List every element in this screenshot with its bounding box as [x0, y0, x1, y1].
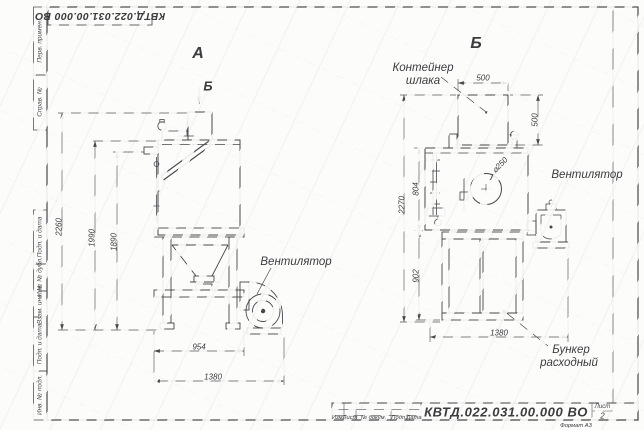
front-dim-total-width: 1380	[204, 373, 222, 382]
side-dim-total-depth: 1380	[490, 329, 508, 338]
front-dim-total-height: 2260	[55, 218, 64, 236]
front-dim-body-height: 1990	[88, 229, 97, 247]
title-col-list: Лист	[343, 415, 358, 421]
margin-cell-sprav-n: Справ. №	[37, 87, 44, 117]
front-fan-callout: Вентилятор	[260, 256, 331, 268]
margin-cell-vzam-inv: Взам. инв. №	[37, 284, 44, 324]
margin-cell-podp-data-2: Подп. и дата	[37, 324, 44, 365]
side-ladder	[427, 153, 445, 226]
margin-cell-perv-primen: Перв. примен.	[37, 19, 44, 62]
margin-cell-podp-data-1: Подп. и дата	[37, 217, 44, 258]
side-dim-total-height: 2270	[398, 196, 407, 214]
front-hopper	[154, 228, 244, 329]
front-body	[144, 140, 240, 235]
side-dim-container-width: 500	[476, 74, 489, 83]
front-dim-body-width: 954	[192, 343, 205, 352]
side-view-label-b: Б	[470, 35, 481, 53]
side-container-callout-line2: шлака	[406, 75, 440, 87]
side-dim-body-height: 804	[412, 182, 421, 195]
side-body	[425, 131, 528, 230]
side-container	[458, 95, 508, 148]
side-fan-callout: Вентилятор	[551, 169, 622, 181]
front-damper	[158, 120, 196, 140]
side-container-callout-line1: Контейнер	[393, 62, 454, 74]
side-bunker-leader	[503, 310, 548, 346]
front-dim-inlet-height: 1890	[110, 233, 119, 251]
title-sheet-number: 2	[600, 412, 604, 421]
title-sheet-label: Лист	[595, 404, 610, 410]
side-fan	[527, 200, 569, 248]
side-bunker-callout-line2: расходный	[540, 357, 598, 369]
side-fan-leader	[551, 181, 562, 207]
side-view-linework	[400, 77, 569, 346]
format-note: Формат А3	[560, 423, 592, 429]
margin-cell-inv-podl: Инв. № подл.	[37, 375, 44, 415]
corner-stamp-doc-number: КВТД.022.031.00.000 ВО	[35, 10, 165, 22]
drawing-sheet: КВТД.022.031.00.000 ВО Перв. примен. Спр…	[0, 0, 644, 430]
title-col-data: Дата	[406, 415, 421, 421]
title-col-podp: Подп.	[391, 415, 406, 421]
side-dim-container-height: 500	[531, 113, 540, 126]
title-doc-number: КВТД.022.031.00.000 ВО	[424, 405, 588, 420]
front-view-label-a: А	[192, 45, 204, 63]
side-bunker-frame	[442, 232, 523, 320]
side-bunker-callout-line1: Бункер	[552, 344, 590, 356]
front-view-label-b: Б	[203, 79, 212, 94]
title-col-ndokum: № докум.	[361, 415, 387, 421]
side-dim-frame-height: 902	[412, 269, 421, 282]
front-fan-leader	[257, 268, 271, 294]
front-fan	[240, 282, 283, 334]
